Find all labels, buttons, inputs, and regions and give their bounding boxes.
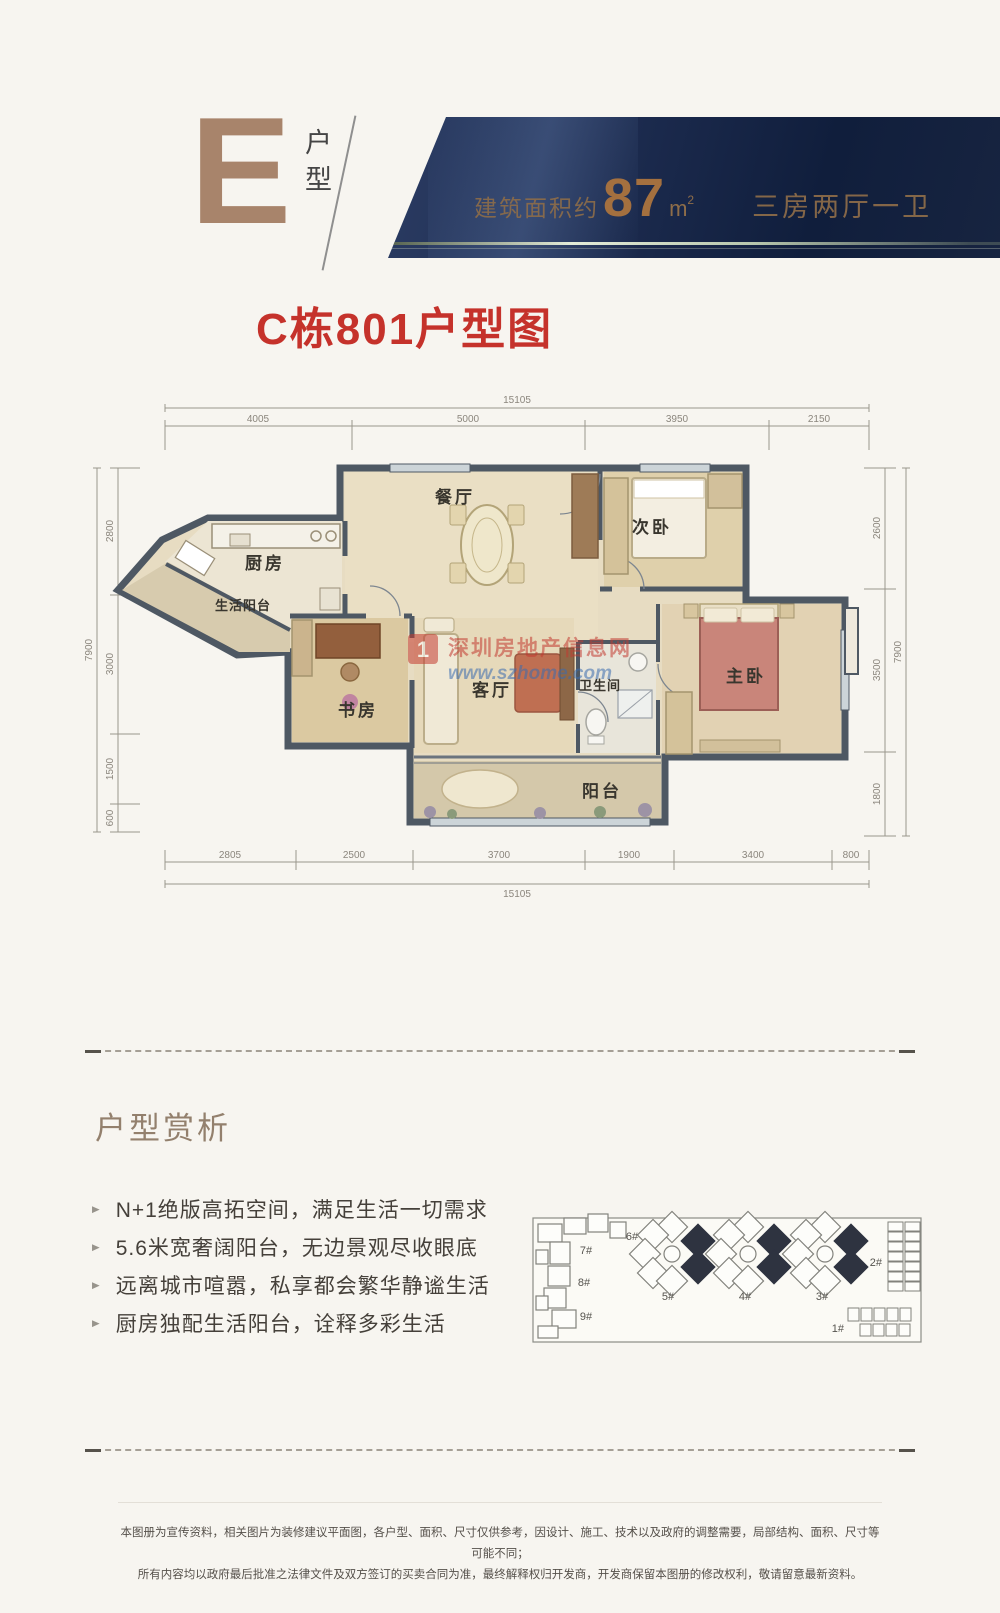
disclaimer-line-2: 所有内容均以政府最后批准之法律文件及双方签订的买卖合同为准，最终解释权归开发商，…: [118, 1565, 882, 1586]
area-unit-sup: 2: [687, 193, 694, 207]
divider-bottom: [85, 1449, 915, 1451]
dimension-lines-bottom: 2805 2500 3700 1900 3400 800 15105: [165, 850, 869, 900]
dim-bottom-seg: 800: [843, 850, 860, 861]
building-label-5: 5#: [662, 1291, 675, 1303]
dim-right-seg: 1800: [872, 782, 883, 805]
banner-metal-stripe: [388, 242, 1000, 245]
building-label-2: 2#: [870, 1257, 883, 1269]
dim-right-seg: 3500: [872, 658, 883, 681]
room-label-balcony: 阳台: [582, 781, 622, 801]
building-label-4: 4#: [739, 1291, 752, 1303]
dim-left-seg: 1500: [105, 757, 116, 780]
building-label-1: 1#: [832, 1323, 845, 1335]
analysis-bullet-text: 厨房独配生活阳台，诠释多彩生活: [116, 1308, 446, 1338]
analysis-bullet: ▶ 5.6米宽奢阔阳台，无边景观尽收眼底: [92, 1228, 490, 1266]
arrow-bullet-icon: ▶: [92, 1242, 100, 1252]
dimension-lines-left: 2800 3000 1500 600 7900: [84, 468, 140, 832]
dim-bottom-seg: 3400: [742, 850, 765, 861]
analysis-bullet: ▶ N+1绝版高拓空间，满足生活一切需求: [92, 1190, 490, 1228]
disclaimer: 本图册为宣传资料，相关图片为装修建议平面图，各户型、面积、尺寸仅供参考，因设计、…: [118, 1502, 882, 1586]
layout-summary: 三房两厅一卫: [752, 185, 932, 224]
room-label-master-bedroom: 主卧: [726, 666, 766, 686]
divider-endcap: [85, 1050, 101, 1053]
watermark-site-name: 深圳房地产信息网: [448, 636, 632, 660]
arrow-bullet-icon: ▶: [92, 1204, 100, 1214]
banner-text: 建筑面积约 87 m 2 三房两厅一卫: [474, 167, 932, 229]
analysis-section-title: 户型赏析: [95, 1103, 231, 1148]
dim-left-total: 7900: [84, 638, 95, 661]
watermark-site-url: www.szhome.com: [448, 663, 612, 684]
dim-bottom-seg: 1900: [618, 850, 641, 861]
floorplan-drawing: 15105 4005 5000 3950 2150 2805 2500 3700…: [80, 385, 940, 915]
dim-top-seg: 4005: [247, 414, 270, 425]
siteplan-drawing: 6# 7# 8# 9# 5# 4# 3# 2# 1#: [520, 1165, 935, 1360]
room-label-utility-balcony: 生活阳台: [215, 598, 271, 613]
divider-endcap: [899, 1050, 915, 1053]
dim-right-total: 7900: [893, 640, 904, 663]
dim-top-total: 15105: [503, 395, 531, 406]
bay-window: [845, 608, 858, 674]
dim-top-seg: 5000: [457, 414, 480, 425]
analysis-bullet-text: N+1绝版高拓空间，满足生活一切需求: [116, 1194, 488, 1224]
dim-bottom-seg: 3700: [488, 850, 511, 861]
area-banner: 建筑面积约 87 m 2 三房两厅一卫: [388, 117, 1000, 258]
divider-top: [85, 1050, 915, 1052]
dim-left-seg: 600: [105, 809, 116, 826]
building-label-3: 3#: [816, 1291, 829, 1303]
building-label-9: 9#: [580, 1311, 593, 1323]
area-unit: m: [669, 196, 687, 222]
watermark-logo: 1: [417, 637, 429, 662]
analysis-bullet: ▶ 厨房独配生活阳台，诠释多彩生活: [92, 1304, 490, 1342]
divider-endcap: [899, 1449, 915, 1452]
dimension-lines-right: 2600 3500 1800 7900: [864, 468, 910, 836]
arrow-bullet-icon: ▶: [92, 1318, 100, 1328]
dim-bottom-seg: 2500: [343, 850, 366, 861]
brochure-page: E 户型 建筑面积约 87 m 2 三房两厅一卫 C栋801户型图 15105 …: [0, 0, 1000, 1613]
analysis-bullet-text: 5.6米宽奢阔阳台，无边景观尽收眼底: [116, 1232, 478, 1262]
analysis-bullet-text: 远离城市喧嚣，私享都会繁华静谧生活: [116, 1270, 490, 1300]
dim-right-seg: 2600: [872, 516, 883, 539]
dim-bottom-seg: 2805: [219, 850, 242, 861]
area-prefix: 建筑面积约: [474, 189, 599, 223]
dim-left-seg: 3000: [105, 652, 116, 675]
apartment-body: 餐厅 次卧 厨房 生活阳台 书房 客厅 卫生间 主卧 阳台 1 深圳房地产信息网…: [118, 464, 858, 826]
dimension-lines-top: 15105 4005 5000 3950 2150: [165, 395, 869, 450]
arrow-bullet-icon: ▶: [92, 1280, 100, 1290]
dim-top-seg: 2150: [808, 414, 831, 425]
building-label-7: 7#: [580, 1245, 593, 1257]
analysis-bullet-list: ▶ N+1绝版高拓空间，满足生活一切需求 ▶ 5.6米宽奢阔阳台，无边景观尽收眼…: [92, 1190, 490, 1342]
dim-left-seg: 2800: [105, 519, 116, 542]
disclaimer-line-1: 本图册为宣传资料，相关图片为装修建议平面图，各户型、面积、尺寸仅供参考，因设计、…: [118, 1523, 882, 1565]
building-label-6: 6#: [626, 1231, 639, 1243]
banner-metal-stripe-thin: [388, 248, 1000, 249]
area-value: 87: [603, 167, 665, 229]
unit-type-letter: E: [190, 92, 287, 252]
unit-type-label: 户型: [297, 128, 336, 202]
room-label-study: 书房: [338, 700, 378, 720]
room-label-second-bedroom: 次卧: [632, 517, 672, 537]
divider-endcap: [85, 1449, 101, 1452]
building-label-8: 8#: [578, 1277, 591, 1289]
dim-bottom-total: 15105: [503, 889, 531, 900]
room-label-dining: 餐厅: [435, 487, 475, 507]
analysis-bullet: ▶ 远离城市喧嚣，私享都会繁华静谧生活: [92, 1266, 490, 1304]
room-label-kitchen: 厨房: [245, 553, 285, 573]
dim-top-seg: 3950: [666, 414, 689, 425]
page-title: C栋801户型图: [256, 293, 553, 357]
